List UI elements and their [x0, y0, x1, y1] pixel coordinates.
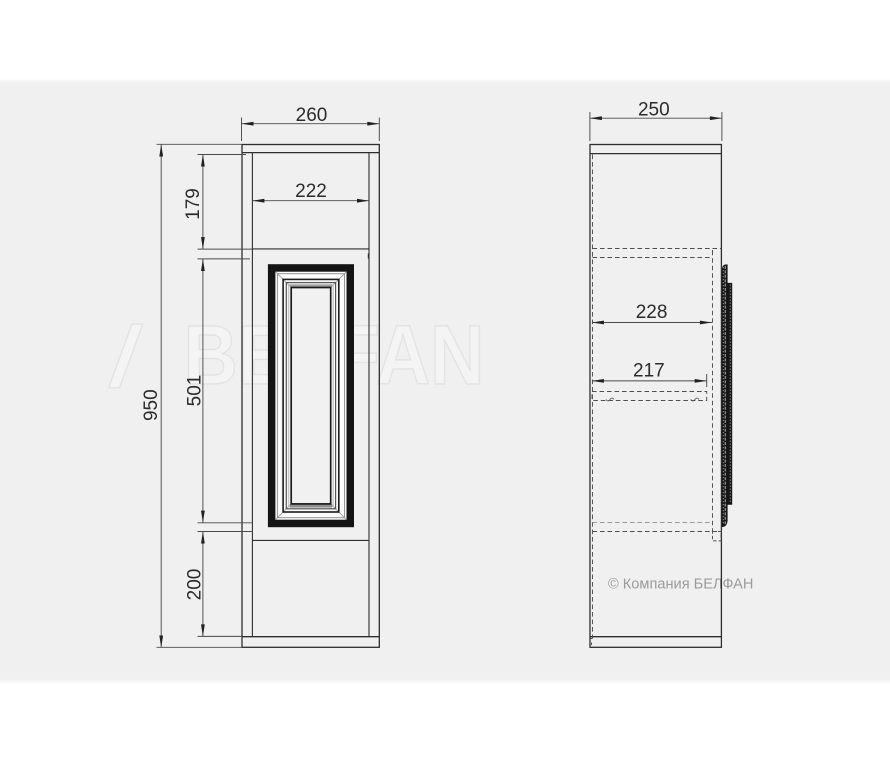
svg-text:222: 222: [295, 181, 327, 202]
svg-text:200: 200: [185, 569, 206, 601]
svg-text:217: 217: [633, 361, 665, 382]
svg-text:950: 950: [141, 389, 162, 421]
svg-text:© Компания БЕЛФАН: © Компания БЕЛФАН: [608, 577, 753, 593]
svg-text:250: 250: [638, 100, 670, 121]
svg-text:228: 228: [636, 302, 668, 323]
svg-text:501: 501: [185, 375, 206, 407]
svg-text:260: 260: [296, 105, 328, 126]
svg-text:179: 179: [183, 188, 204, 220]
